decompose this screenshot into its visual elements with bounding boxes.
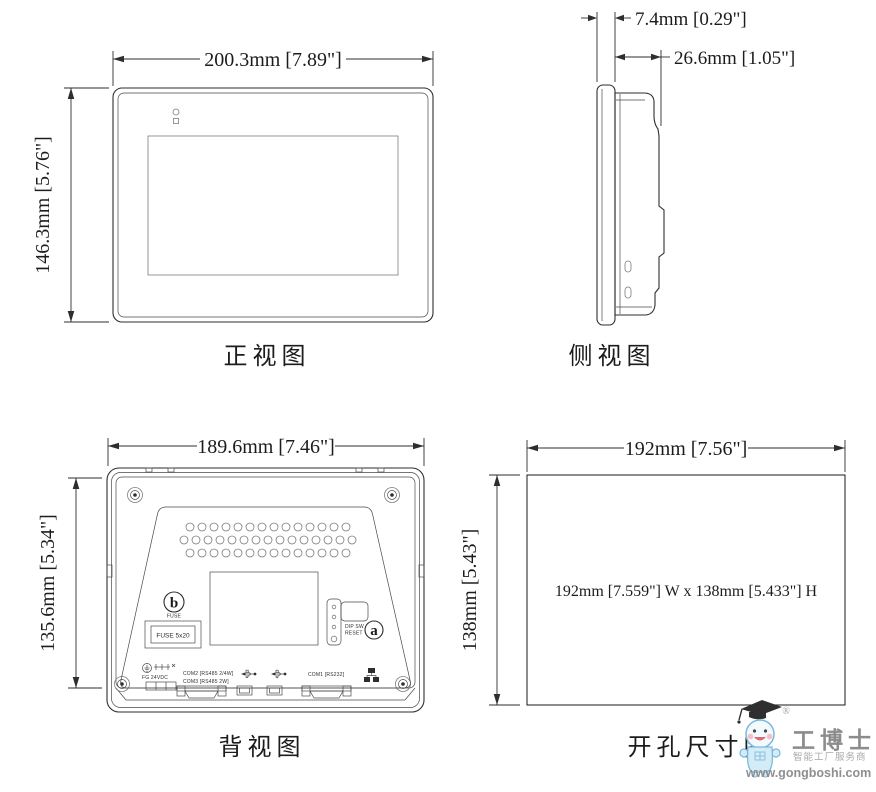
com2-label: COM2 [RS485 2/4W] [183, 671, 234, 677]
drawing-svg: 200.3mm [7.89"] 146.3mm [5.76"] 正视图 [0, 0, 876, 792]
front-panel-outline [113, 88, 433, 322]
fuse-box-label: FUSE 5x20 [156, 633, 190, 640]
front-view-caption: 正视图 [224, 343, 311, 370]
front-led-indicator-icon [173, 109, 179, 115]
side-bezel-depth-dimension: 7.4mm [0.29"] [581, 9, 747, 82]
front-sensor-icon [174, 119, 179, 124]
side-slot-lower [625, 287, 631, 298]
back-mount-area [121, 507, 411, 688]
cutout-height-dimension: 138mm [5.43"] [459, 475, 520, 705]
back-view-caption: 背视图 [219, 734, 306, 761]
cutout-height-label: 138mm [5.43"] [459, 529, 481, 652]
back-height-label: 135.6mm [5.34"] [37, 514, 59, 652]
cutout-width-label: 192mm [7.56"] [625, 438, 748, 460]
back-corner-screws [115, 488, 411, 692]
side-profile-outline [597, 85, 664, 325]
ethernet-icon [364, 668, 379, 682]
watermark-tagline: 智能工厂服务商 [793, 751, 867, 763]
power-terminal: FG 24VDC [142, 664, 176, 691]
back-view: 189.6mm [7.46"] 135.6mm [5.34"] [37, 436, 424, 761]
watermark-brand: 工博士 [792, 727, 876, 753]
front-width-dimension: 200.3mm [7.89"] [113, 49, 433, 86]
dip-sw-label: DIP SW [345, 624, 364, 630]
front-height-dimension: 146.3mm [5.76"] [32, 88, 109, 322]
front-height-label: 146.3mm [5.76"] [32, 136, 54, 274]
screw-icon [396, 677, 411, 692]
registered-mark: ® [782, 706, 790, 717]
com3-label: COM3 [RS485 2W] [183, 679, 229, 685]
reset-label: RESET [345, 631, 363, 637]
front-view: 200.3mm [7.89"] 146.3mm [5.76"] 正视图 [32, 49, 433, 370]
usb-icon [241, 670, 256, 678]
com1-label: COM1 [RS232] [308, 672, 345, 678]
watermark-logo: ® 工博士 智能工厂服务商 www.gongboshi.com [737, 700, 876, 780]
side-view-caption: 侧视图 [569, 343, 656, 370]
fuse-callout-letter: b [170, 596, 178, 612]
fuse-callout: b FUSE FUSE 5x20 [145, 592, 201, 648]
power-label: FG 24VDC [142, 675, 168, 681]
fuse-callout-caption: FUSE [167, 614, 182, 620]
usb-icon [271, 670, 286, 678]
screw-icon [115, 677, 130, 692]
side-view: 7.4mm [0.29"] 26.6mm [1.05"] 侧视图 [569, 9, 796, 370]
back-width-label: 189.6mm [7.46"] [197, 436, 335, 458]
dip-callout-letter: a [370, 623, 378, 639]
usb-ports [237, 670, 286, 695]
power-pin-symbol-icon [154, 664, 175, 670]
dip-switch-assembly: DIP SW RESET a [327, 599, 383, 645]
front-width-label: 200.3mm [7.89"] [204, 49, 342, 71]
side-total-depth-dimension: 26.6mm [1.05"] [615, 48, 795, 126]
front-screen-area [148, 136, 398, 275]
back-label-plate [210, 572, 318, 645]
screw-icon [128, 488, 143, 503]
screw-icon [385, 488, 400, 503]
cutout-width-dimension: 192mm [7.56"] [527, 438, 845, 472]
side-bezel-depth-label: 7.4mm [0.29"] [635, 9, 747, 30]
cutout-size-annotation: 192mm [7.559"] W x 138mm [5.433"] H [555, 583, 818, 600]
dimension-drawing-page: 200.3mm [7.89"] 146.3mm [5.76"] 正视图 [0, 0, 876, 792]
side-total-depth-label: 26.6mm [1.05"] [674, 48, 795, 69]
side-slot-upper [625, 261, 631, 272]
vent-holes [180, 523, 356, 557]
com1-connector: COM1 [RS232] [302, 672, 351, 698]
watermark-url: www.gongboshi.com [745, 766, 871, 780]
com2-com3-connector: COM2 [RS485 2/4W] COM3 [RS485 2W] [177, 671, 234, 698]
battery-cover [341, 602, 368, 621]
back-width-dimension: 189.6mm [7.46"] [108, 436, 424, 466]
back-height-dimension: 135.6mm [5.34"] [37, 478, 102, 688]
